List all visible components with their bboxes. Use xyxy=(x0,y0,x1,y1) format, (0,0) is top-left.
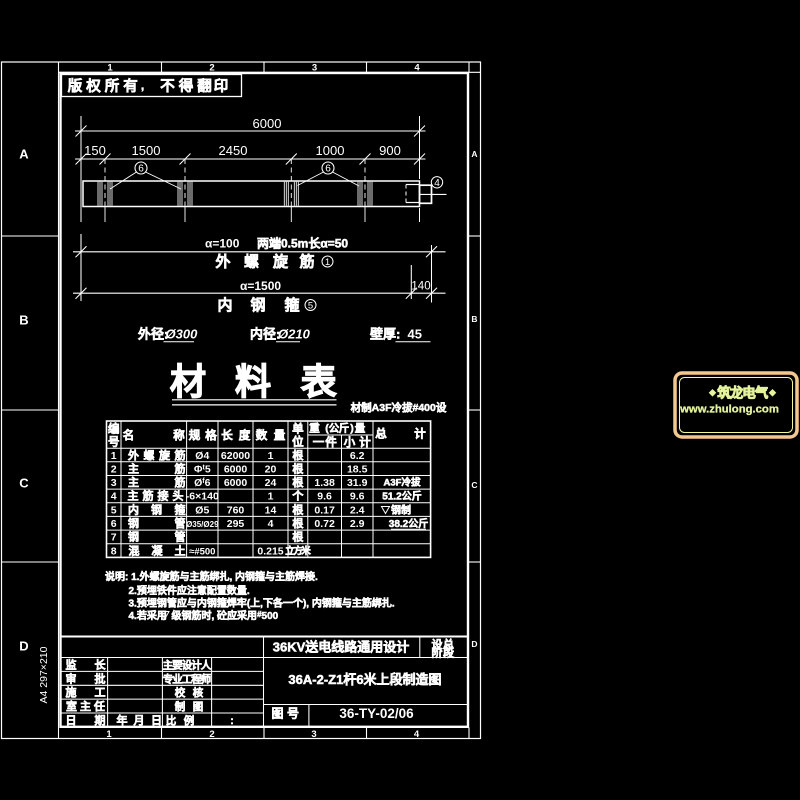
svg-text:Ø300: Ø300 xyxy=(166,327,199,342)
svg-text:Φt5: Φt5 xyxy=(194,463,211,475)
svg-text:斤: 斤 xyxy=(339,422,350,435)
svg-text:根: 根 xyxy=(292,502,304,516)
svg-text:4: 4 xyxy=(268,518,274,530)
svg-text:根: 根 xyxy=(292,530,304,544)
svg-text:箍: 箍 xyxy=(284,296,299,314)
svg-text:6000: 6000 xyxy=(253,116,282,131)
svg-text:土: 土 xyxy=(175,543,186,557)
svg-text:年: 年 xyxy=(117,713,128,727)
svg-text:人: 人 xyxy=(201,659,212,672)
svg-text:www.zhulong.com: www.zhulong.com xyxy=(679,404,779,416)
svg-text:1: 1 xyxy=(106,729,112,740)
svg-text:级钢筋时, 砼应采用#500: 级钢筋时, 砼应采用#500 xyxy=(171,609,279,622)
svg-text:段: 段 xyxy=(443,646,454,660)
svg-text:材制A3F冷拔#400设: 材制A3F冷拔#400设 xyxy=(350,401,447,414)
svg-text:5: 5 xyxy=(111,504,117,516)
svg-text:6: 6 xyxy=(325,164,331,175)
svg-text:4.若采用: 4.若采用 xyxy=(129,609,167,622)
svg-text:月: 月 xyxy=(133,714,145,727)
svg-text:钢: 钢 xyxy=(128,530,139,544)
svg-text:筋: 筋 xyxy=(174,448,186,462)
svg-text:2: 2 xyxy=(209,729,214,740)
svg-text:总: 总 xyxy=(375,427,387,441)
svg-text:图: 图 xyxy=(193,701,204,713)
svg-text:D: D xyxy=(19,639,28,654)
svg-text:钢: 钢 xyxy=(250,296,265,314)
svg-text:表: 表 xyxy=(301,361,337,402)
svg-text:得: 得 xyxy=(178,77,194,95)
svg-text:≈#500: ≈#500 xyxy=(189,546,215,557)
svg-text:日: 日 xyxy=(151,714,162,727)
svg-text:主: 主 xyxy=(80,699,91,713)
svg-text:900: 900 xyxy=(379,143,401,158)
svg-text:不: 不 xyxy=(160,78,175,95)
svg-text:称: 称 xyxy=(173,428,185,442)
svg-text:1: 1 xyxy=(111,450,117,462)
svg-text:说明: 1.外螺旋筋与主筋绑扎, 内钢箍与主筋焊接.: 说明: 1.外螺旋筋与主筋绑扎, 内钢箍与主筋焊接. xyxy=(105,570,318,583)
svg-text:钢: 钢 xyxy=(151,502,162,516)
svg-text:校: 校 xyxy=(175,686,186,699)
svg-text:钢: 钢 xyxy=(128,516,139,530)
svg-text:内: 内 xyxy=(217,296,232,314)
svg-text:批: 批 xyxy=(95,671,106,685)
svg-text:外: 外 xyxy=(214,253,230,271)
svg-text:3.预埋钢管应与内钢箍焊牢(上,下各一个), 内钢箍与主筋绑: 3.预埋钢管应与内钢箍焊牢(上,下各一个), 内钢箍与主筋绑扎. xyxy=(129,597,395,610)
svg-text:根: 根 xyxy=(292,448,304,462)
svg-text:期: 期 xyxy=(95,713,106,727)
svg-text:36-TY-02/06: 36-TY-02/06 xyxy=(339,706,414,721)
svg-text:气: 气 xyxy=(754,385,769,401)
svg-text:A3F冷拔: A3F冷拔 xyxy=(384,477,421,489)
svg-text:Ø4: Ø4 xyxy=(195,450,209,462)
svg-text:任: 任 xyxy=(93,699,105,713)
svg-text:4: 4 xyxy=(111,491,117,503)
svg-text:Ø210: Ø210 xyxy=(278,327,311,342)
svg-text:6000: 6000 xyxy=(224,463,248,475)
svg-text:36KV送电线路通用设计: 36KV送电线路通用设计 xyxy=(273,640,410,655)
svg-text:螺: 螺 xyxy=(244,253,259,271)
svg-text:版: 版 xyxy=(68,77,83,95)
svg-text:编: 编 xyxy=(108,422,120,436)
svg-text:主: 主 xyxy=(128,489,139,503)
svg-text:管: 管 xyxy=(175,530,186,544)
svg-text:号: 号 xyxy=(287,706,299,721)
svg-text:单: 单 xyxy=(292,422,304,436)
svg-text:295: 295 xyxy=(227,518,245,530)
svg-text:2.预埋铁件应注意配置数量.: 2.预埋铁件应注意配置数量. xyxy=(129,584,250,597)
svg-text:α=100: α=100 xyxy=(205,237,240,251)
svg-text:核: 核 xyxy=(193,686,204,699)
svg-text:0.17: 0.17 xyxy=(314,504,335,516)
svg-text:旋: 旋 xyxy=(272,253,289,271)
svg-text:3: 3 xyxy=(311,729,316,740)
svg-text:36A-2-Z1杆6米上段制造图: 36A-2-Z1杆6米上段制造图 xyxy=(288,672,441,687)
svg-text:3: 3 xyxy=(312,63,317,74)
svg-text:6: 6 xyxy=(111,518,117,530)
svg-text:阶: 阶 xyxy=(432,646,444,660)
svg-text:长: 长 xyxy=(95,658,107,672)
svg-text:Ø35/Ø29: Ø35/Ø29 xyxy=(186,520,219,529)
svg-text:B: B xyxy=(19,313,28,328)
svg-text:规: 规 xyxy=(189,428,201,442)
svg-text:计: 计 xyxy=(414,427,426,441)
svg-text:2.9: 2.9 xyxy=(350,518,365,530)
svg-text:根: 根 xyxy=(292,475,304,489)
svg-text:6: 6 xyxy=(138,164,144,175)
svg-text:室: 室 xyxy=(66,699,77,713)
svg-text:翻: 翻 xyxy=(197,77,212,95)
svg-text:4: 4 xyxy=(414,729,420,740)
svg-text:2.4: 2.4 xyxy=(350,504,365,516)
svg-text:根: 根 xyxy=(292,461,304,475)
svg-text:一: 一 xyxy=(313,437,325,449)
svg-text:印: 印 xyxy=(214,77,229,95)
svg-text:量: 量 xyxy=(274,428,286,442)
svg-text:有: 有 xyxy=(123,77,138,95)
svg-text:2450: 2450 xyxy=(219,143,248,158)
svg-text:外: 外 xyxy=(127,448,139,462)
svg-text:8: 8 xyxy=(111,545,117,557)
svg-text:监: 监 xyxy=(66,658,77,672)
svg-text:2: 2 xyxy=(209,63,214,74)
svg-text:接: 接 xyxy=(158,489,169,503)
svg-text:0.72: 0.72 xyxy=(314,518,335,530)
svg-text:A4 297×210: A4 297×210 xyxy=(38,646,50,703)
svg-text:6.2: 6.2 xyxy=(350,450,365,462)
svg-text:1: 1 xyxy=(268,450,274,462)
svg-text:主: 主 xyxy=(128,461,139,475)
svg-text:Ø5: Ø5 xyxy=(195,504,209,516)
svg-text:箍: 箍 xyxy=(175,502,186,516)
svg-text:权: 权 xyxy=(85,77,101,95)
svg-text:师: 师 xyxy=(201,672,212,685)
svg-text:外径:: 外径: xyxy=(137,327,168,342)
svg-text:所: 所 xyxy=(105,78,120,95)
svg-text:A: A xyxy=(471,149,477,159)
svg-text:7: 7 xyxy=(111,532,117,544)
svg-text:日: 日 xyxy=(66,714,77,727)
svg-text:45: 45 xyxy=(408,327,422,342)
svg-text:14: 14 xyxy=(265,504,277,516)
svg-text:管: 管 xyxy=(175,516,186,530)
svg-text:内: 内 xyxy=(128,502,139,516)
svg-text:C: C xyxy=(471,480,477,490)
svg-text:计: 计 xyxy=(359,435,371,449)
svg-text:4: 4 xyxy=(414,63,420,74)
svg-text:1: 1 xyxy=(268,491,274,503)
svg-text:件: 件 xyxy=(325,435,337,449)
svg-text:格: 格 xyxy=(205,428,217,442)
svg-text:140: 140 xyxy=(411,281,430,293)
svg-text:38.2公斤: 38.2公斤 xyxy=(389,517,428,530)
svg-text:0.215: 0.215 xyxy=(257,545,283,557)
svg-text:4: 4 xyxy=(434,178,440,189)
svg-text:米: 米 xyxy=(300,545,311,557)
svg-text:号: 号 xyxy=(108,436,120,449)
svg-text:150: 150 xyxy=(84,143,106,158)
svg-text:头: 头 xyxy=(173,489,184,503)
svg-text:旋: 旋 xyxy=(158,448,171,462)
svg-text:螺: 螺 xyxy=(144,448,155,462)
svg-text:1: 1 xyxy=(107,63,113,74)
svg-text:B: B xyxy=(471,314,477,324)
svg-text:2: 2 xyxy=(111,463,117,475)
svg-text:施: 施 xyxy=(66,685,77,699)
svg-text:18.5: 18.5 xyxy=(347,463,368,475)
svg-text:主: 主 xyxy=(128,475,139,489)
svg-text:31.9: 31.9 xyxy=(347,477,368,489)
svg-text:根: 根 xyxy=(292,516,304,530)
svg-text:1500: 1500 xyxy=(132,143,161,158)
svg-text:例: 例 xyxy=(184,714,195,727)
svg-text:α=1500: α=1500 xyxy=(240,279,281,293)
svg-text:量: 量 xyxy=(355,422,366,435)
svg-text:3: 3 xyxy=(111,477,117,489)
svg-text:5: 5 xyxy=(308,300,313,311)
svg-text:20: 20 xyxy=(265,463,277,475)
svg-text:62000: 62000 xyxy=(221,450,250,462)
svg-text:筋: 筋 xyxy=(142,489,154,503)
svg-text:筋: 筋 xyxy=(298,253,314,271)
svg-text:料: 料 xyxy=(235,361,271,402)
svg-text:重: 重 xyxy=(309,422,320,435)
svg-text:长: 长 xyxy=(221,428,233,442)
svg-text:,: , xyxy=(141,79,144,93)
svg-text:名: 名 xyxy=(123,428,135,442)
svg-text:51.2公斤: 51.2公斤 xyxy=(382,490,421,503)
svg-text:度: 度 xyxy=(239,428,251,442)
svg-text:A: A xyxy=(19,147,29,162)
svg-text:图: 图 xyxy=(271,707,283,721)
svg-text:审: 审 xyxy=(66,671,77,685)
svg-text:两端0.5m长α=50: 两端0.5m长α=50 xyxy=(257,236,348,251)
svg-text:数: 数 xyxy=(256,428,268,442)
svg-text::: : xyxy=(230,715,234,727)
svg-text:C: C xyxy=(19,476,29,491)
svg-text:9.6: 9.6 xyxy=(317,491,332,503)
svg-text:筋: 筋 xyxy=(174,475,186,489)
svg-text:个: 个 xyxy=(291,489,304,503)
svg-text:760: 760 xyxy=(227,504,245,516)
svg-text:壁厚:: 壁厚: xyxy=(370,327,400,342)
svg-text:1000: 1000 xyxy=(316,143,345,158)
svg-text:筋: 筋 xyxy=(174,461,186,475)
svg-text:): ) xyxy=(350,423,354,435)
svg-text:9.6: 9.6 xyxy=(350,491,365,503)
svg-text:1: 1 xyxy=(325,257,330,268)
svg-text:钢: 钢 xyxy=(391,503,401,516)
svg-text:位: 位 xyxy=(292,435,304,449)
svg-text:小: 小 xyxy=(343,435,356,449)
svg-text:制: 制 xyxy=(175,700,186,713)
svg-text:工: 工 xyxy=(95,686,106,699)
svg-text:1.38: 1.38 xyxy=(314,477,335,489)
svg-text:比: 比 xyxy=(166,714,177,727)
svg-text:-6×140: -6×140 xyxy=(186,491,219,503)
svg-text:制: 制 xyxy=(401,503,411,516)
svg-text:24: 24 xyxy=(265,477,277,489)
svg-text:材: 材 xyxy=(170,361,206,402)
svg-text:混: 混 xyxy=(129,543,140,557)
svg-text:内径:: 内径: xyxy=(250,327,280,342)
svg-text:6000: 6000 xyxy=(224,477,248,489)
svg-text:凝: 凝 xyxy=(152,543,164,557)
svg-text:D: D xyxy=(471,639,477,649)
